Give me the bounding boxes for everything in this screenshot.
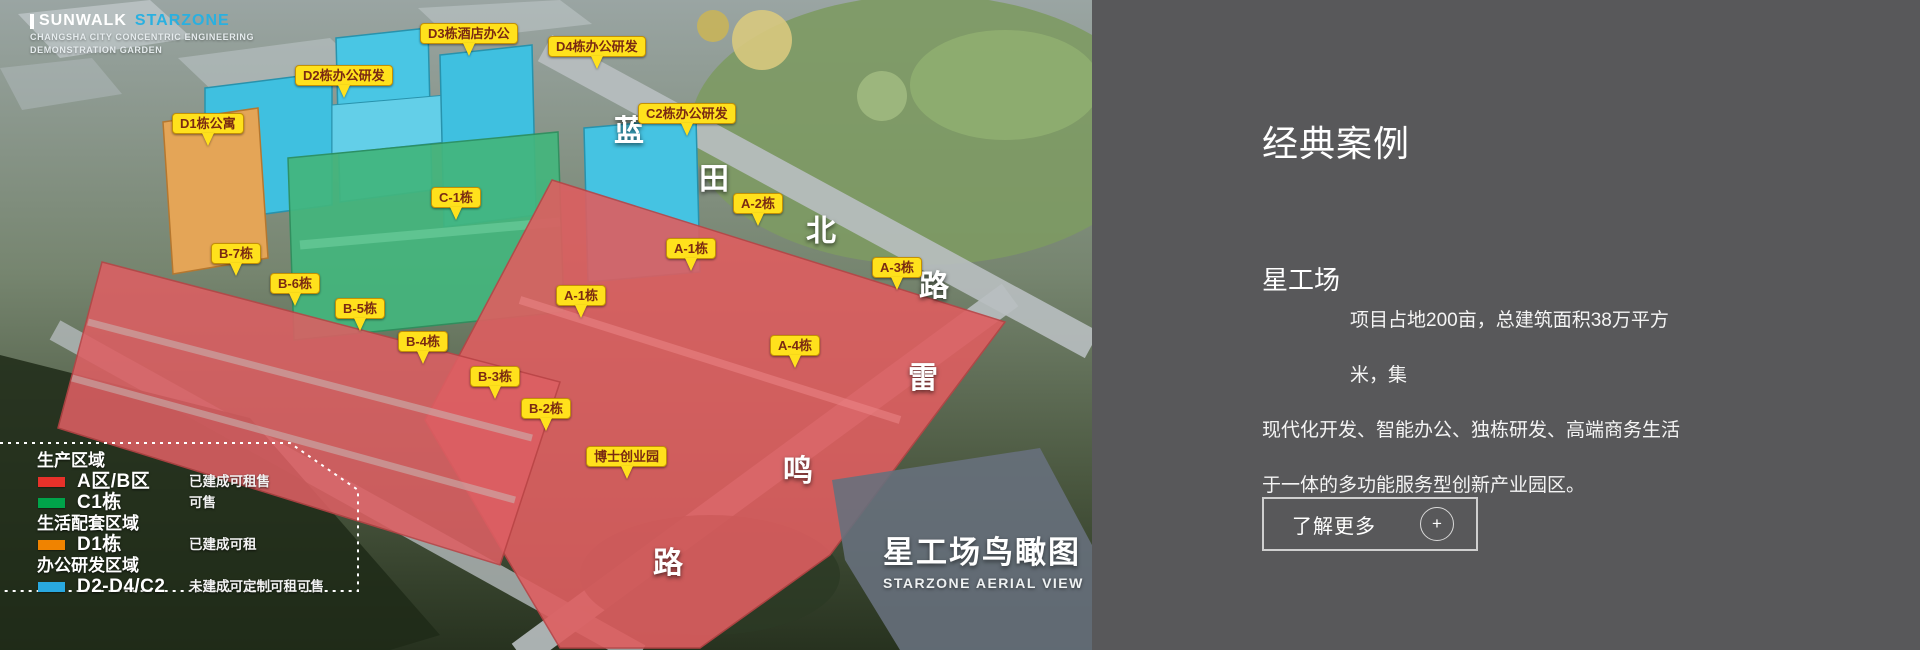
building-label: D3栋酒店办公	[420, 23, 518, 44]
starzone-showcase-page: SUNWALK STARZONE CHANGSHA CITY CONCENTRI…	[0, 0, 1920, 650]
legend-item-desc: 已建成可租售	[189, 471, 270, 492]
building-label: D2栋办公研发	[295, 65, 393, 86]
legend-swatch	[38, 498, 65, 508]
legend-item: A区/B区 已建成可租售	[38, 471, 324, 492]
logo: SUNWALK STARZONE CHANGSHA CITY CONCENTRI…	[30, 12, 254, 56]
legend-item-name: D2-D4/C2	[77, 576, 189, 597]
building-label: B-2栋	[521, 398, 571, 419]
legend-swatch	[38, 582, 65, 592]
building-label: A-3栋	[872, 257, 922, 278]
legend-item-name: D1栋	[77, 534, 189, 555]
watermark-subtitle: STARZONE AERIAL VIEW	[883, 575, 1084, 591]
legend-group-header: 办公研发区域	[37, 555, 324, 576]
building-label: 博士创业园	[586, 446, 667, 467]
watermark-title: 星工场鸟瞰图	[883, 527, 1084, 572]
legend-item-name: C1栋	[77, 492, 189, 513]
legend-item: C1栋 可售	[38, 492, 324, 513]
map-legend: 生产区域 A区/B区 已建成可租售 C1栋 可售 生活配套区域 D1栋 已建成可…	[38, 450, 324, 597]
legend-item-desc: 已建成可租	[189, 534, 257, 555]
project-title: 星工场	[1262, 260, 1340, 297]
learn-more-button[interactable]: 了解更多 +	[1262, 497, 1478, 551]
building-label: A-4栋	[770, 335, 820, 356]
road-label: 北	[806, 206, 836, 250]
plus-icon: +	[1420, 507, 1454, 541]
logo-brand-primary: SUNWALK	[39, 12, 127, 30]
section-title: 经典案例	[1262, 115, 1410, 167]
building-label: B-4栋	[398, 331, 448, 352]
legend-group-header: 生产区域	[37, 450, 324, 471]
road-label: 路	[919, 261, 949, 305]
building-label: A-2栋	[733, 193, 783, 214]
aerial-view-image: SUNWALK STARZONE CHANGSHA CITY CONCENTRI…	[0, 0, 1092, 650]
building-label: C-1栋	[431, 187, 481, 208]
road-label: 雷	[908, 353, 938, 397]
legend-swatch	[38, 540, 65, 550]
road-label: 鸣	[783, 446, 813, 490]
road-label: 路	[653, 538, 683, 582]
logo-subtitle-line1: CHANGSHA CITY CONCENTRIC ENGINEERING	[30, 32, 254, 43]
project-description: 项目占地200亩，总建筑面积38万平方米，集 现代化开发、智能办公、独栋研发、高…	[1262, 293, 1692, 513]
info-panel: 经典案例 星工场 项目占地200亩，总建筑面积38万平方米，集 现代化开发、智能…	[1092, 0, 1920, 650]
building-label: D4栋办公研发	[548, 36, 646, 57]
building-label: A-1栋	[556, 285, 606, 306]
building-label: A-1栋	[666, 238, 716, 259]
road-label: 田	[699, 154, 729, 198]
legend-item-desc: 可售	[189, 492, 216, 513]
building-label: B-5栋	[335, 298, 385, 319]
learn-more-label: 了解更多	[1292, 510, 1376, 539]
legend-item: D1栋 已建成可租	[38, 534, 324, 555]
description-line: 现代化开发、智能办公、独栋研发、高端商务生活	[1262, 403, 1692, 458]
logo-bar-icon	[30, 14, 34, 29]
aerial-watermark: 星工场鸟瞰图 STARZONE AERIAL VIEW	[883, 527, 1084, 591]
building-label: B-7栋	[211, 243, 261, 264]
building-label: B-3栋	[470, 366, 520, 387]
legend-item-desc: 未建成可定制可租可售	[189, 576, 324, 597]
building-label: C2栋办公研发	[638, 103, 736, 124]
logo-brand-secondary: STARZONE	[135, 12, 230, 30]
legend-item: D2-D4/C2 未建成可定制可租可售	[38, 576, 324, 597]
description-line: 项目占地200亩，总建筑面积38万平方米，集	[1262, 293, 1692, 403]
legend-group-header: 生活配套区域	[37, 513, 324, 534]
logo-subtitle-line2: DEMONSTRATION GARDEN	[30, 45, 254, 56]
building-label: B-6栋	[270, 273, 320, 294]
building-label: D1栋公寓	[172, 113, 244, 134]
legend-item-name: A区/B区	[77, 471, 189, 492]
legend-swatch	[38, 477, 65, 487]
